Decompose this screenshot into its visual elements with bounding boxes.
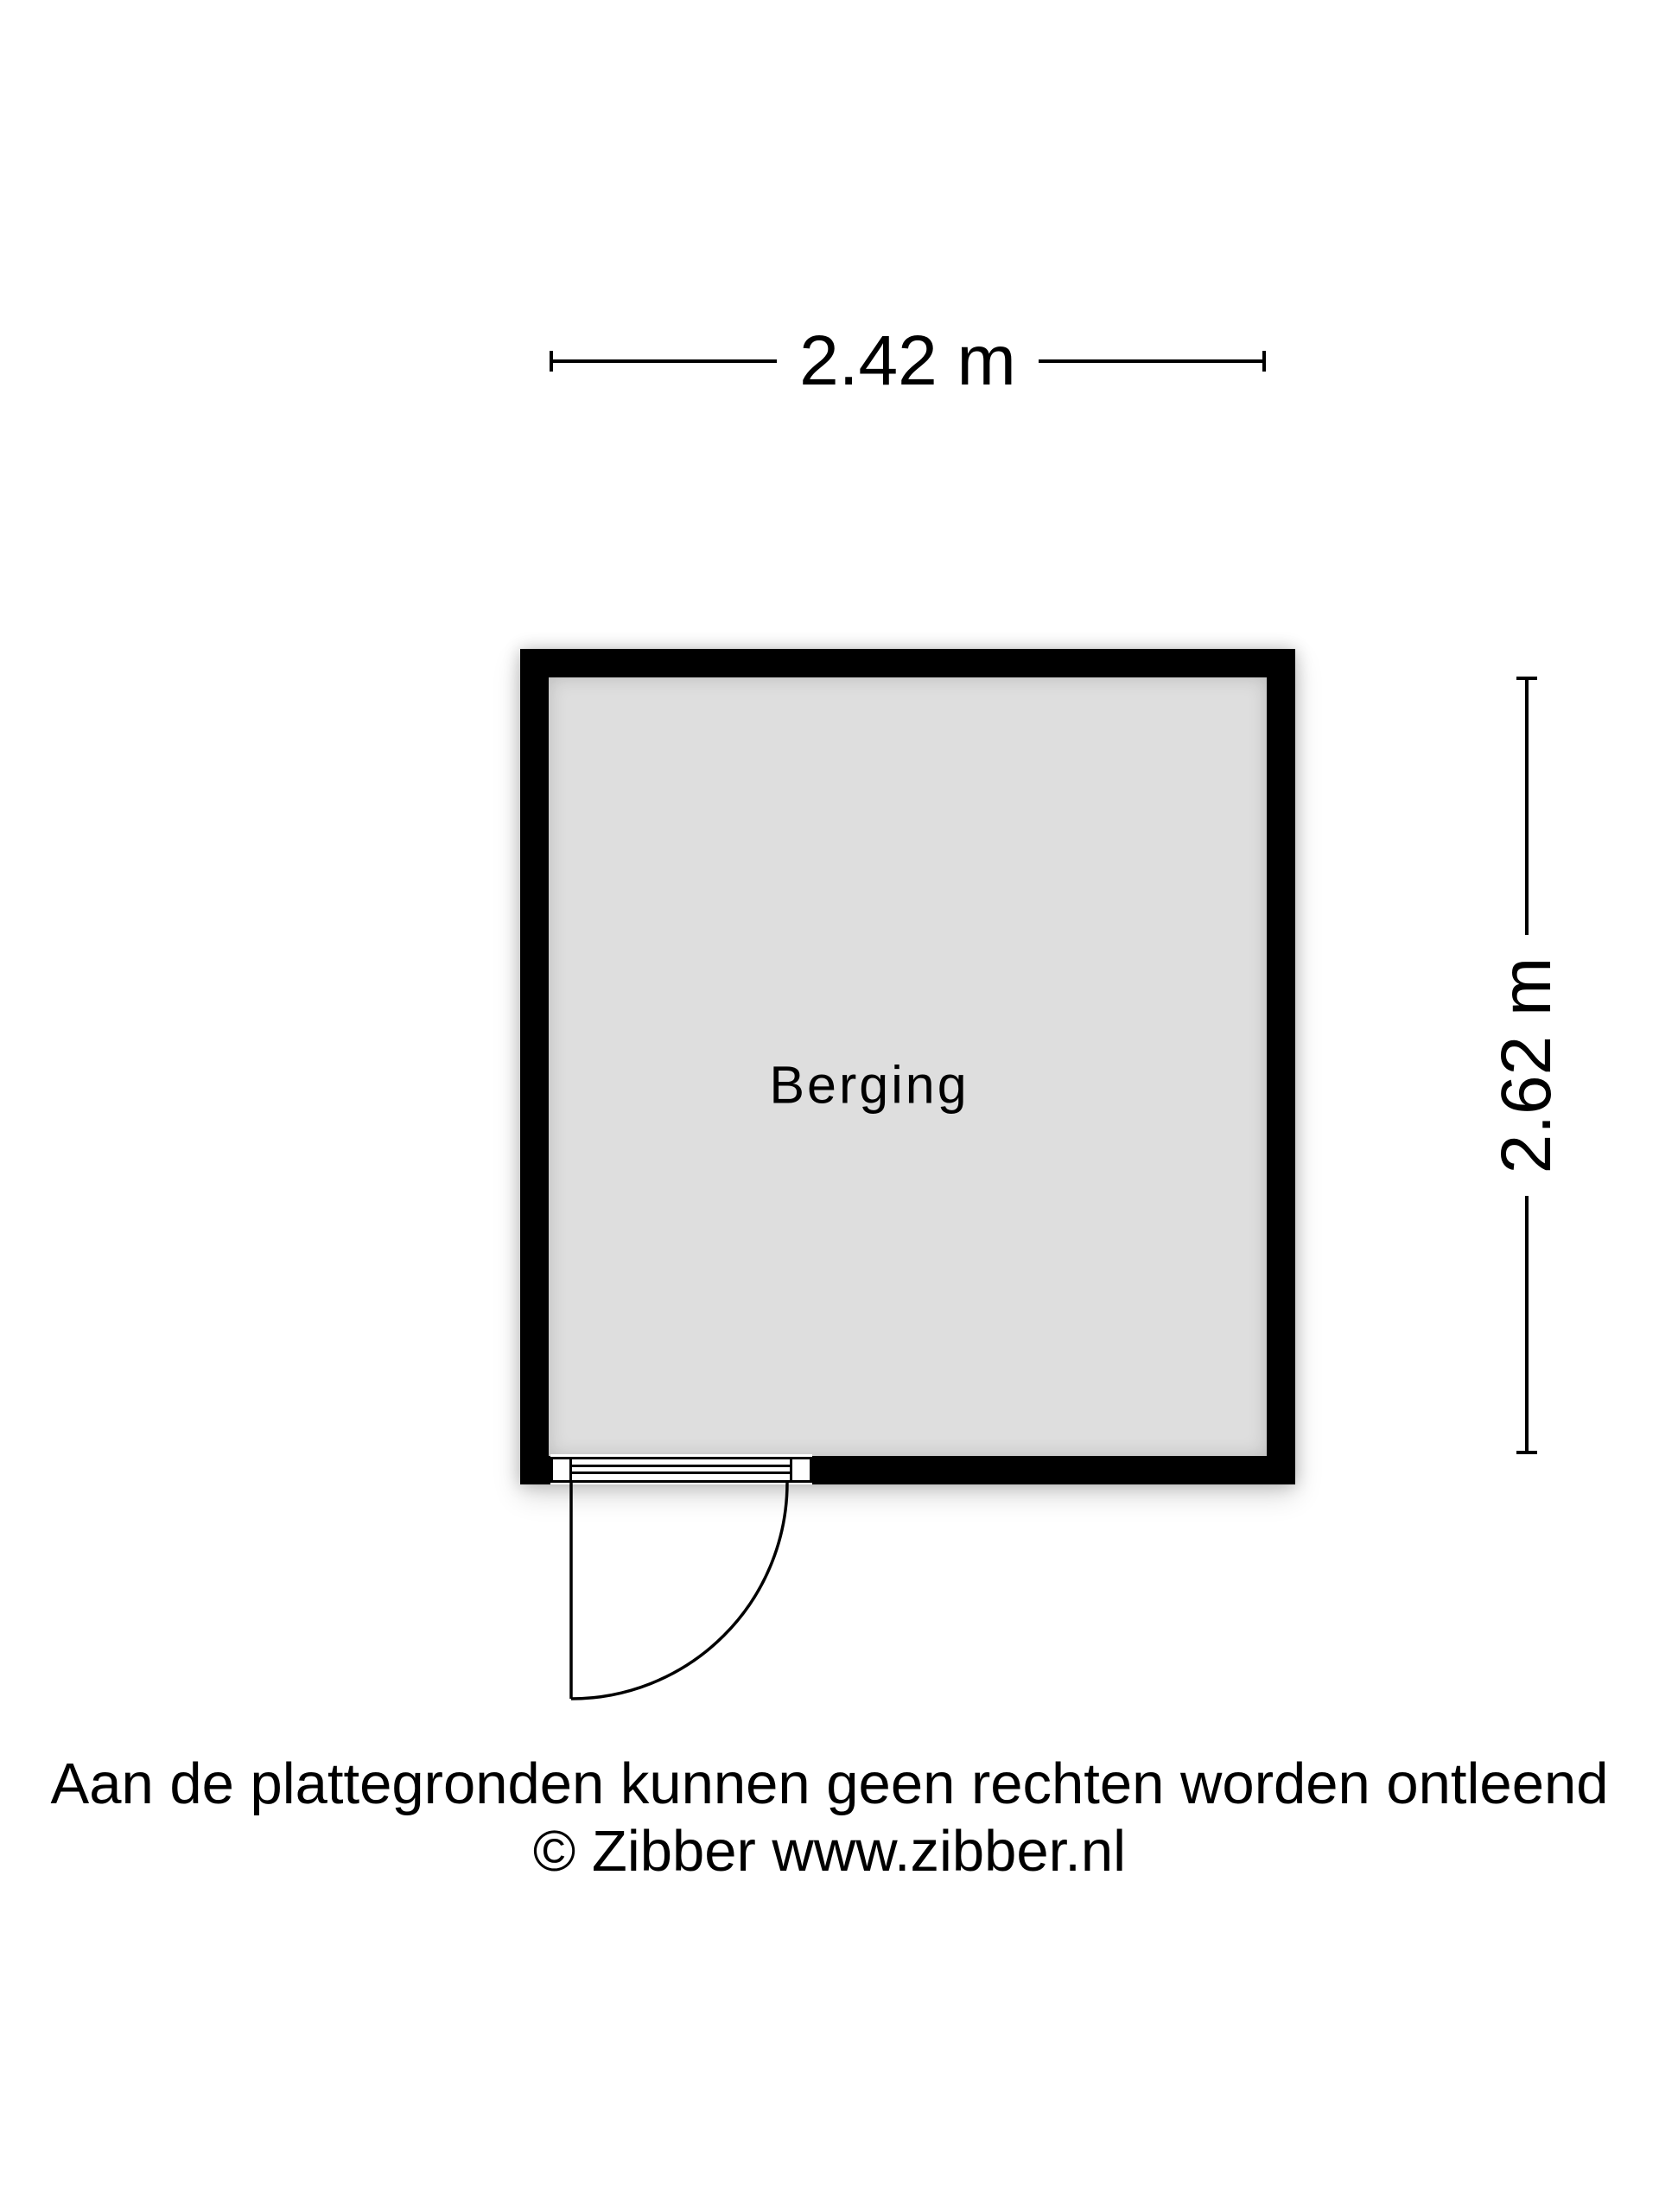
dimension-line-segment	[1525, 680, 1529, 935]
footer: Aan de plattegronden kunnen geen rechten…	[0, 1751, 1659, 1885]
dimension-end-cap	[1516, 677, 1537, 680]
room-label: Berging	[769, 1059, 969, 1112]
dimension-line-segment	[553, 359, 777, 363]
height-dimension-label: 2.62 m	[1491, 935, 1562, 1197]
dimension-line-segment	[1525, 1196, 1529, 1451]
disclaimer-text: Aan de plattegronden kunnen geen rechten…	[0, 1751, 1659, 1818]
copyright-text: © Zibber www.zibber.nl	[0, 1818, 1659, 1885]
door-swing	[536, 1469, 812, 1719]
dimension-end-cap	[1262, 351, 1266, 372]
floorplan-page: 2.42 m 2.62 m Berging Aan de plattegrond…	[0, 0, 1659, 2212]
height-dimension: 2.62 m	[1478, 677, 1575, 1454]
dimension-end-cap	[1516, 1451, 1537, 1454]
door-swing-arc	[571, 1483, 787, 1699]
door-sill-line	[572, 1465, 790, 1467]
width-dimension: 2.42 m	[550, 313, 1266, 410]
width-dimension-label: 2.42 m	[777, 326, 1039, 397]
dimension-line-segment	[1039, 359, 1262, 363]
